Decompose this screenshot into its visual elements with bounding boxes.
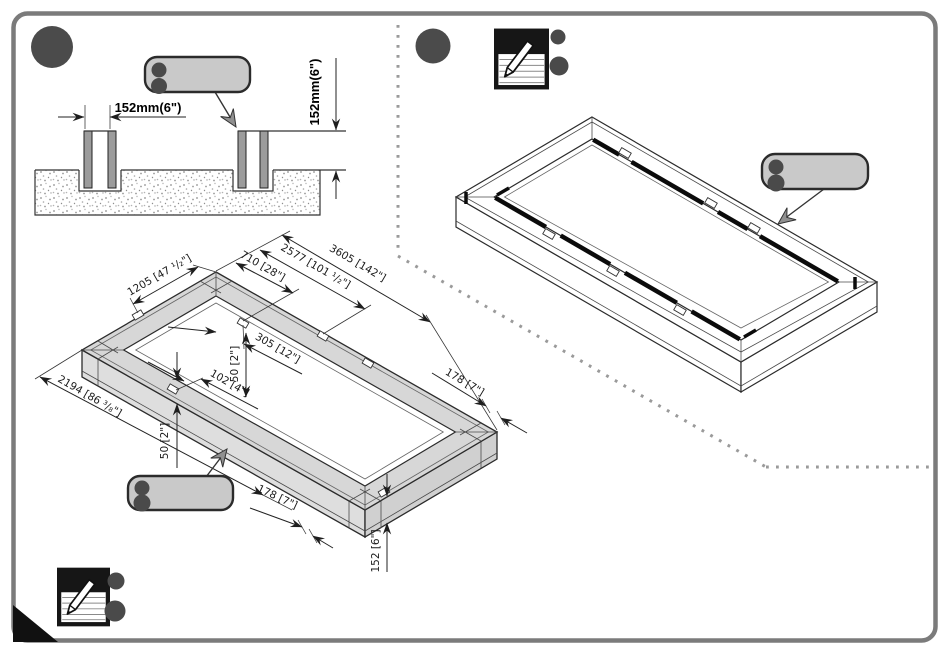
callout-bullet	[134, 495, 151, 512]
callout-trench	[145, 57, 250, 131]
trench-gap-label: 152mm(6")	[115, 100, 182, 115]
corner-fold	[13, 605, 58, 642]
callout-bullet	[768, 175, 785, 192]
page-canvas: 152mm(6") 152mm(6")	[0, 0, 950, 661]
buried-post	[238, 131, 246, 188]
buried-post	[84, 131, 92, 188]
callout-beam	[128, 444, 233, 511]
note-bullet-dot	[105, 601, 126, 622]
ground-hatch	[35, 170, 320, 215]
note-icon-bottom	[57, 568, 126, 627]
buried-post	[108, 131, 116, 188]
callout-bullet	[135, 481, 150, 496]
buried-post	[260, 131, 268, 188]
manual-page: 152mm(6") 152mm(6")	[0, 0, 950, 661]
dim-label-152: 152 [6"]	[370, 529, 382, 572]
callout-arrowhead	[221, 109, 243, 131]
note-bullet-dot	[551, 30, 566, 45]
note-bullet-dot	[108, 573, 125, 590]
note-bullet-dot	[550, 57, 569, 76]
callout-bullet	[769, 160, 784, 175]
dim-label-178-right: 178 [7"]	[443, 366, 486, 398]
step-2-circle	[416, 29, 451, 64]
dim-label-710: 710 [28"]	[238, 249, 287, 284]
notepad-pencil-icon	[57, 568, 110, 627]
callout-rail	[762, 154, 868, 230]
note-icon-top	[494, 29, 569, 90]
notepad-pencil-icon	[494, 29, 549, 90]
foundation-frame-drawing: 1205 [47 ¹/₂"] 710 [28"] 2577 [101 ¹/₂"]…	[35, 231, 527, 573]
callout-bullet	[152, 63, 167, 78]
dimension-trench-gap: 152mm(6")	[58, 100, 186, 129]
step-1-circle	[31, 26, 73, 68]
trench-depth-label: 152mm(6")	[307, 59, 322, 126]
dimension-3605: 3605 [142"]	[282, 235, 430, 322]
dim-label-50-left: 50 [2"]	[159, 423, 171, 459]
callout-bullet	[151, 78, 167, 94]
